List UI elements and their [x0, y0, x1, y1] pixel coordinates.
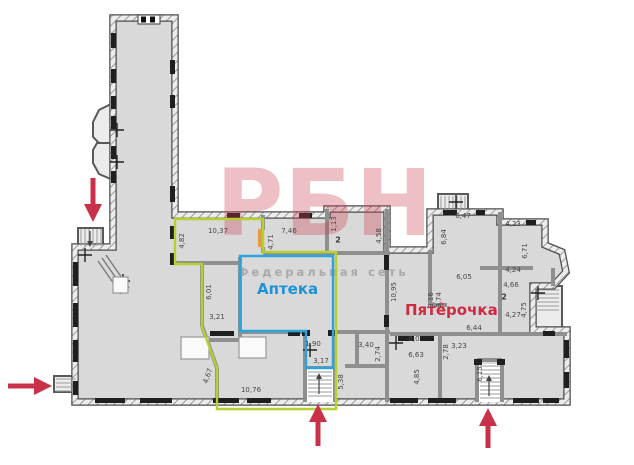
- dimension-label: 4,85: [413, 369, 421, 385]
- dimension-label: 2,78: [442, 344, 450, 360]
- dimension-label: 6,63: [408, 351, 424, 359]
- dimension-label: 3,16: [427, 292, 435, 308]
- dimension-label: 6,15: [476, 366, 484, 382]
- dimension-label: 6,84: [440, 229, 448, 245]
- dimension-label: 4,71: [267, 234, 275, 250]
- labels-layer: Аптека Пятёрочка 10,374,827,464,711,134,…: [0, 0, 634, 465]
- dimension-label: 5,38: [337, 374, 345, 390]
- room-number: 2: [501, 293, 507, 302]
- dimension-label: 4,75: [520, 302, 528, 318]
- floor-plan: РБН Федеральная сеть Аптека Пятёрочка 10…: [0, 0, 634, 465]
- dimension-label: 6,44: [466, 324, 482, 332]
- dimension-label: 4,23: [505, 220, 521, 228]
- dimension-label: 4,66: [503, 281, 519, 289]
- dimension-label: 6,71: [521, 243, 529, 259]
- dimension-label: 4,82: [178, 233, 186, 249]
- dimension-label: 7,46: [281, 227, 297, 235]
- dimension-label: 3,23: [451, 342, 467, 350]
- dimension-label: 2,74: [374, 346, 382, 362]
- dimension-label: 1,13: [330, 216, 338, 232]
- dimension-label: 4,67: [202, 367, 215, 384]
- dimension-label: 6,01: [205, 284, 213, 300]
- room-number: 2: [335, 236, 341, 245]
- dimension-label: 3,17: [313, 357, 329, 365]
- dimension-label: 10,95: [390, 282, 398, 302]
- dimension-label: 3,21: [209, 313, 225, 321]
- dimension-label: 10,76: [241, 386, 261, 394]
- dimension-label: 6,05: [456, 273, 472, 281]
- dimension-label: 6,47: [455, 212, 471, 220]
- pharmacy-tenant-label: Аптека: [257, 280, 318, 298]
- dimension-label: 3,40: [358, 341, 374, 349]
- dimension-label: 4,58: [375, 228, 383, 244]
- dimension-label: 4,27: [505, 311, 521, 319]
- dimension-label: 3,74: [435, 292, 443, 308]
- dimension-label: 6,0: [408, 335, 419, 343]
- dimension-label: 10,37: [208, 227, 228, 235]
- dimension-label: 4,24: [505, 266, 521, 274]
- store-tenant-label: Пятёрочка: [405, 301, 498, 319]
- dimension-label: 1,90: [305, 340, 321, 348]
